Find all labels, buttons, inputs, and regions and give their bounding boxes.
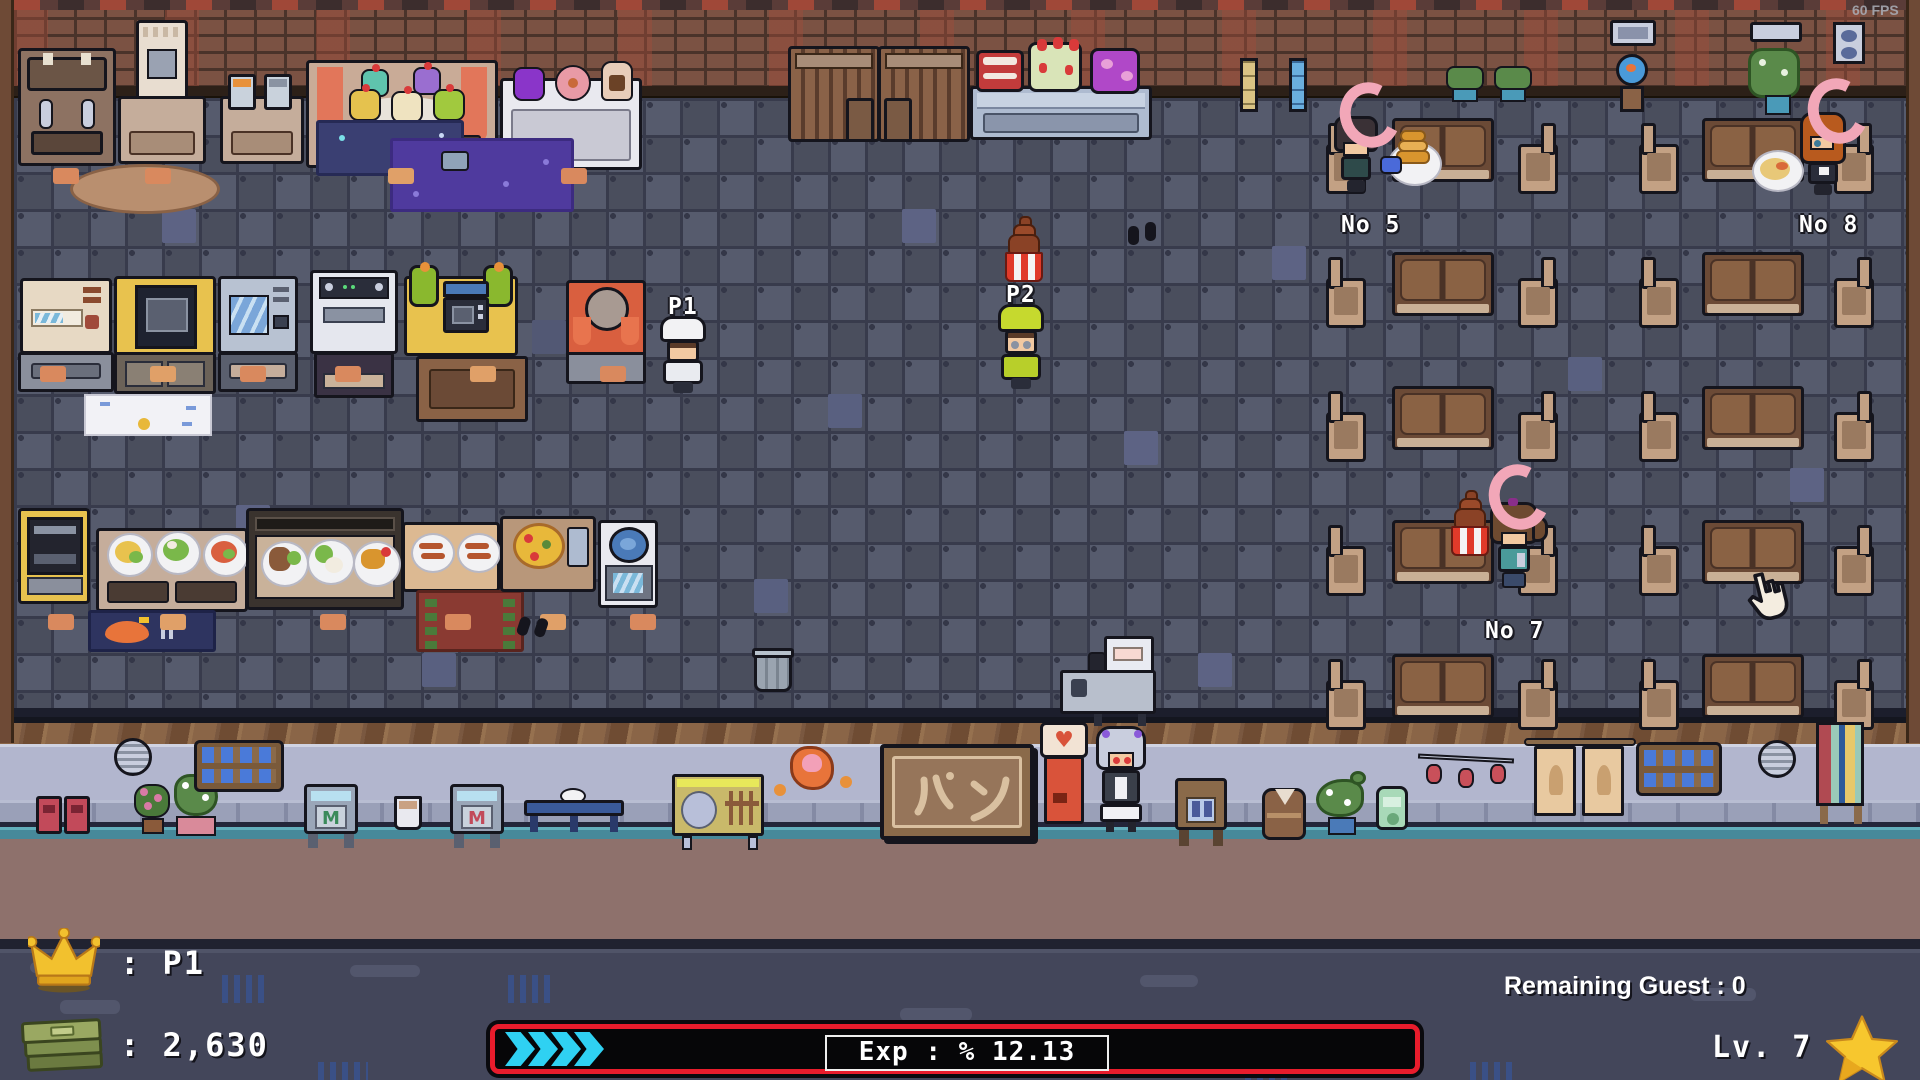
player2-chef[interactable] bbox=[998, 304, 1044, 390]
dining-chair[interactable] bbox=[1326, 680, 1366, 730]
dining-table[interactable] bbox=[1702, 654, 1804, 718]
noren-curtains bbox=[1532, 738, 1628, 822]
magazine-letter: M bbox=[461, 805, 493, 829]
dining-area bbox=[0, 0, 1920, 1080]
wall-vent bbox=[114, 738, 152, 776]
money-amount: : 2,630 bbox=[120, 1026, 269, 1064]
dining-chair[interactable] bbox=[1518, 278, 1558, 328]
bakery-sign-glyphs bbox=[910, 766, 1014, 826]
dining-chair[interactable] bbox=[1639, 278, 1679, 328]
flower-pot-pink bbox=[134, 784, 172, 836]
dining-chair[interactable] bbox=[1326, 412, 1366, 462]
crown-icon bbox=[28, 928, 100, 994]
guest-8-label: No 8 bbox=[1799, 212, 1858, 238]
dining-chair[interactable] bbox=[1326, 546, 1366, 596]
dining-table[interactable] bbox=[1702, 252, 1804, 316]
dining-chair[interactable] bbox=[1639, 412, 1679, 462]
dining-chair[interactable] bbox=[1326, 278, 1366, 328]
hanging-lanterns bbox=[1418, 752, 1514, 792]
bottle-shelf bbox=[194, 740, 284, 792]
dining-chair[interactable] bbox=[1518, 144, 1558, 194]
street-banner bbox=[1814, 722, 1868, 826]
dining-chair[interactable] bbox=[1518, 412, 1558, 462]
money-icon bbox=[20, 1010, 109, 1080]
dining-chair[interactable] bbox=[1518, 680, 1558, 730]
dining-chair[interactable] bbox=[1639, 144, 1679, 194]
magazine-stand-green: M bbox=[304, 784, 358, 850]
guest-7-label: No 7 bbox=[1485, 618, 1544, 644]
bakery-sign: パン bbox=[880, 744, 1040, 852]
dining-table[interactable] bbox=[1702, 386, 1804, 450]
star-icon bbox=[1826, 1014, 1898, 1080]
game-viewport: P1 P2 No 5 No 8 No 7 bbox=[0, 0, 1920, 1080]
order-stall: ♥ bbox=[1044, 726, 1090, 826]
dining-table[interactable] bbox=[1392, 252, 1494, 316]
dining-chair[interactable] bbox=[1639, 680, 1679, 730]
wood-stand bbox=[1175, 778, 1227, 848]
bottle-shelf bbox=[1636, 742, 1722, 796]
waitress-npc[interactable] bbox=[1094, 726, 1150, 832]
player1-chef[interactable] bbox=[660, 316, 706, 394]
remaining-guest-label: Remaining Guest : 0 bbox=[1504, 972, 1746, 1001]
topiary-plant bbox=[1316, 773, 1368, 837]
pasta-plate bbox=[1752, 150, 1804, 192]
pancake-plate bbox=[1388, 142, 1442, 186]
dining-chair[interactable] bbox=[1639, 546, 1679, 596]
leader-name: : P1 bbox=[120, 944, 205, 982]
wall-vent bbox=[1758, 740, 1796, 778]
fps-counter: 60 FPS bbox=[1852, 2, 1899, 18]
exp-fill-chevrons bbox=[505, 1032, 597, 1070]
soft-serve-on-table bbox=[1446, 494, 1490, 554]
dining-chair[interactable] bbox=[1834, 278, 1874, 328]
guest-5-label: No 5 bbox=[1341, 212, 1400, 238]
exp-bar: Exp : % 12.13 bbox=[490, 1024, 1420, 1074]
soft-serve-carried bbox=[1000, 220, 1044, 280]
red-trash-bins bbox=[36, 796, 92, 836]
takoyaki-signboard bbox=[672, 774, 768, 850]
magazine-letter: M bbox=[315, 805, 347, 829]
exp-label: Exp : % 12.13 bbox=[825, 1035, 1109, 1071]
flower-ornament bbox=[788, 744, 840, 796]
green-jar-street bbox=[1376, 786, 1408, 830]
blue-bench bbox=[524, 792, 624, 834]
barrel bbox=[1262, 788, 1306, 840]
level-label: Lv. 7 bbox=[1712, 1030, 1812, 1065]
dining-table[interactable] bbox=[1392, 386, 1494, 450]
exp-chevron bbox=[505, 1032, 535, 1066]
magazine-stand-red: M bbox=[450, 784, 504, 850]
bucket bbox=[394, 796, 422, 830]
dining-table[interactable] bbox=[1392, 654, 1494, 718]
dining-chair[interactable] bbox=[1834, 412, 1874, 462]
dining-chair[interactable] bbox=[1834, 546, 1874, 596]
